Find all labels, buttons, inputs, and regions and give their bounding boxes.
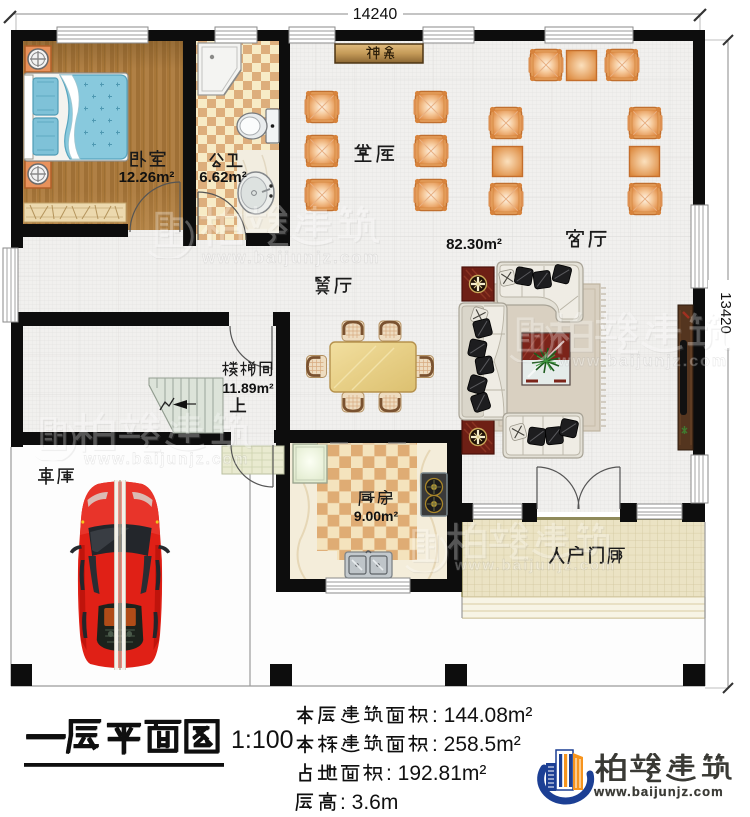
svg-text:1:100: 1:100: [231, 726, 294, 754]
svg-text:: 144.08m²: : 144.08m²: [432, 704, 532, 727]
svg-text:: 3.6m: : 3.6m: [340, 791, 398, 814]
svg-text:11.89m²: 11.89m²: [222, 380, 274, 396]
svg-text:www.baijunjz.com: www.baijunjz.com: [557, 353, 728, 370]
svg-text:14240: 14240: [353, 6, 398, 23]
svg-text:12.26m²: 12.26m²: [119, 169, 175, 186]
svg-text:9.00m²: 9.00m²: [354, 508, 399, 524]
svg-text:www.baijunjz.com: www.baijunjz.com: [83, 451, 250, 468]
svg-text:www.baijunjz.com: www.baijunjz.com: [201, 248, 381, 267]
svg-text:82.30m²: 82.30m²: [446, 236, 502, 253]
svg-text:www.baijunjz.com: www.baijunjz.com: [593, 784, 724, 799]
svg-text:www.baijunjz.com: www.baijunjz.com: [454, 557, 616, 574]
svg-text:6.62m²: 6.62m²: [199, 169, 247, 186]
svg-text:: 258.5m²: : 258.5m²: [432, 733, 521, 756]
svg-text:: 192.81m²: : 192.81m²: [386, 762, 486, 785]
